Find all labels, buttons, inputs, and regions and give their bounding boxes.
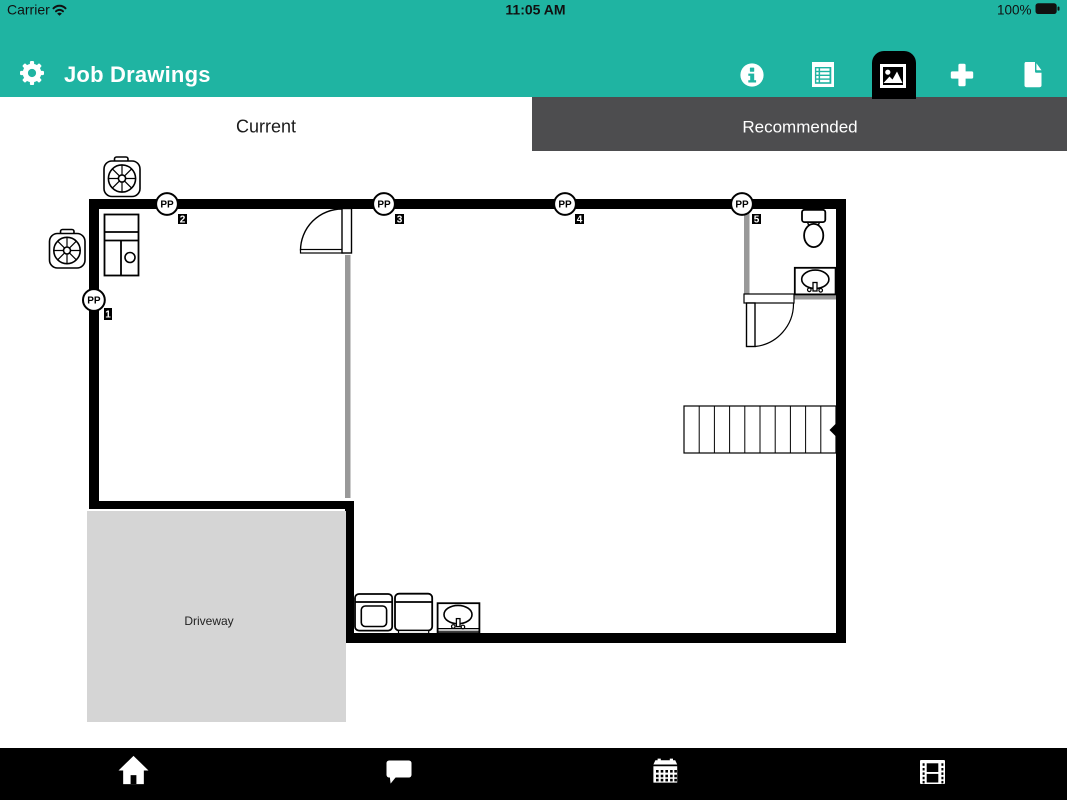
svg-text:PP: PP [558, 200, 572, 211]
svg-text:PP: PP [87, 296, 101, 307]
svg-text:1: 1 [105, 310, 111, 321]
svg-text:3: 3 [397, 214, 403, 225]
svg-text:2: 2 [180, 214, 186, 225]
svg-text:Current: Current [236, 117, 296, 137]
svg-text:PP: PP [735, 200, 749, 211]
svg-text:Recommended: Recommended [742, 118, 857, 137]
svg-text:5: 5 [754, 214, 760, 225]
svg-text:11:05 AM: 11:05 AM [505, 2, 565, 18]
svg-text:4: 4 [577, 214, 583, 225]
svg-text:Carrier: Carrier [7, 2, 50, 18]
svg-text:PP: PP [377, 200, 391, 211]
svg-text:PP: PP [160, 200, 174, 211]
svg-text:Job Drawings: Job Drawings [64, 62, 211, 87]
svg-text:Driveway: Driveway [184, 614, 233, 628]
svg-text:100%: 100% [997, 3, 1032, 18]
